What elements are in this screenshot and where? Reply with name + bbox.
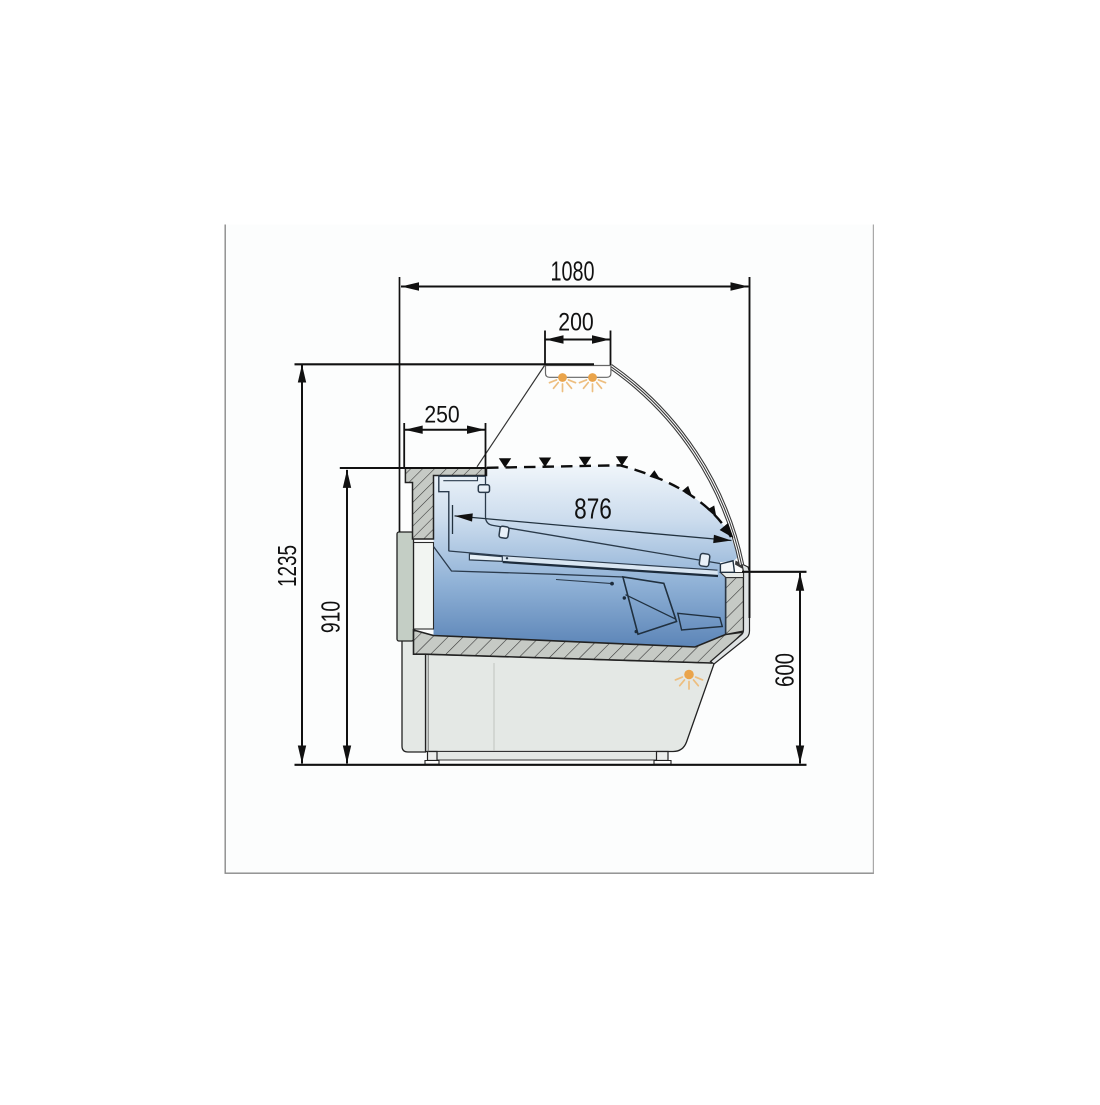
- svg-text:1235: 1235: [273, 545, 301, 587]
- svg-text:1080: 1080: [550, 256, 594, 287]
- svg-text:600: 600: [770, 653, 799, 687]
- svg-text:910: 910: [317, 601, 345, 633]
- svg-text:250: 250: [424, 400, 459, 428]
- svg-text:200: 200: [558, 308, 593, 336]
- svg-text:876: 876: [574, 492, 612, 525]
